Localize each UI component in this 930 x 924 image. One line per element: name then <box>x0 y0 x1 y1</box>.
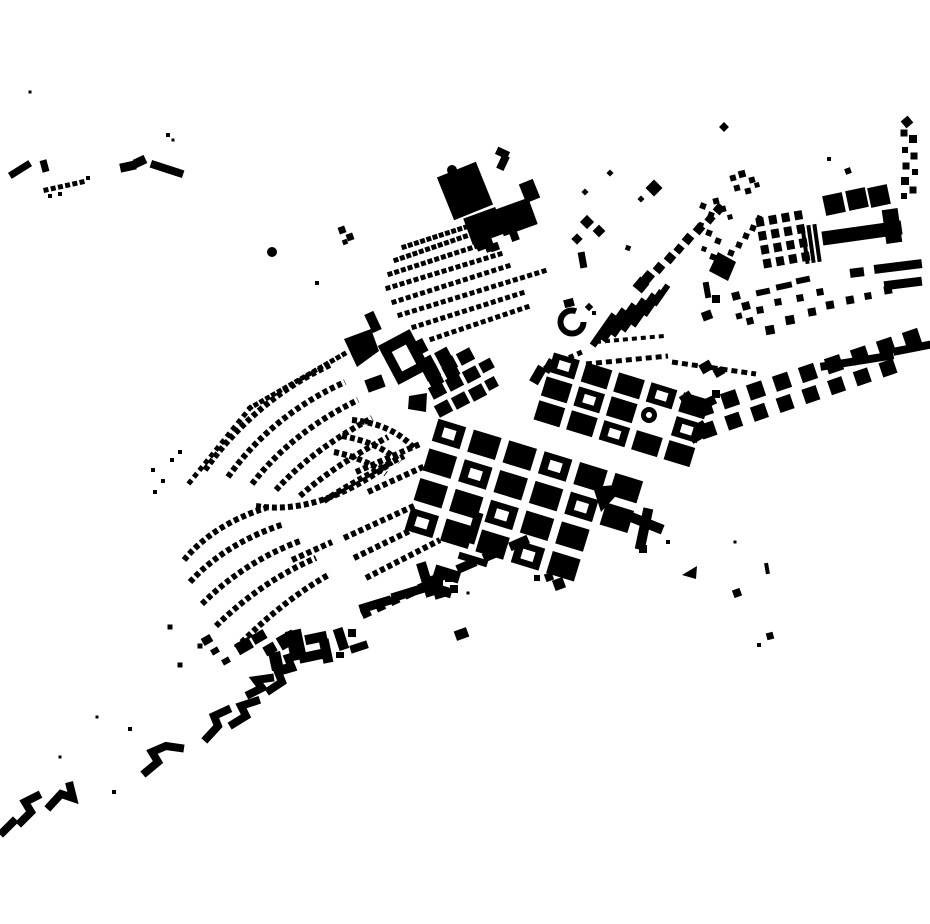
terrace-row-house <box>398 297 404 303</box>
terrace-row-house <box>419 290 425 296</box>
building-polygon <box>408 393 427 412</box>
building-footprint <box>764 563 770 575</box>
building-footprint <box>519 179 540 203</box>
building-footprint <box>664 252 677 265</box>
terrace-row-house <box>411 307 417 313</box>
building-footprint <box>201 634 214 646</box>
terrace-row-house <box>418 248 424 254</box>
building-footprint <box>776 281 793 290</box>
building-footprint <box>901 177 909 185</box>
building-footprint <box>874 259 923 274</box>
building-footprint <box>701 310 713 322</box>
building-footprint <box>342 239 348 245</box>
terrace-row-house <box>462 262 468 268</box>
building-footprint <box>348 629 356 637</box>
gasometer-ring <box>561 311 584 334</box>
terrace-row-house <box>750 403 769 422</box>
building-footprint <box>705 229 713 237</box>
building-footprint <box>902 147 908 153</box>
building-footprint <box>901 116 914 129</box>
terrace-row-house <box>405 253 411 259</box>
building-footprint <box>796 276 811 285</box>
terrace-row-house <box>487 316 493 322</box>
building-footprint <box>166 133 170 137</box>
zigzag-terrace <box>3 822 13 832</box>
city-block <box>541 376 573 403</box>
building-footprint <box>719 122 729 132</box>
building-footprint <box>571 233 582 244</box>
terrace-row-house <box>458 326 464 332</box>
city-block <box>781 212 790 222</box>
terrace-row-house <box>434 270 440 276</box>
building-footprint <box>86 176 90 180</box>
housing-row <box>586 356 668 364</box>
terrace-row-house <box>526 272 532 278</box>
building-footprint <box>221 656 231 665</box>
city-block <box>566 410 598 437</box>
zigzag-terrace <box>233 701 256 724</box>
building-footprint <box>827 157 831 161</box>
terrace-row-house <box>411 324 417 330</box>
terrace-row-house <box>450 228 456 234</box>
building-footprint <box>701 246 707 252</box>
terrace-row-house <box>241 411 248 418</box>
terrace-row-house <box>418 322 424 328</box>
city-block <box>631 430 663 457</box>
terrace-row-house <box>57 184 63 190</box>
building-footprint <box>349 640 369 653</box>
building-footprint <box>909 135 917 143</box>
building-footprint <box>727 214 733 220</box>
terrace-row-house <box>406 279 412 285</box>
building-footprint <box>8 160 32 179</box>
zigzag-terrace <box>207 710 227 738</box>
terrace-row-house <box>469 274 475 280</box>
terrace-row-house <box>392 283 398 289</box>
city-block <box>555 521 589 551</box>
city-block <box>529 481 563 511</box>
city-block <box>786 240 795 250</box>
building-footprint <box>765 325 775 335</box>
city-block <box>534 400 566 427</box>
building-footprint <box>754 182 760 188</box>
terrace-row-house <box>407 242 413 248</box>
terrace-row-house <box>827 376 846 395</box>
building-footprint <box>673 243 684 254</box>
terrace-row-house <box>476 257 482 263</box>
terrace-row-house <box>341 351 348 358</box>
terrace-row-house <box>476 303 482 309</box>
terrace-row-house <box>441 283 447 289</box>
zigzag-terrace <box>50 786 73 806</box>
city-block <box>775 256 784 266</box>
terrace-row-house <box>407 264 413 270</box>
building-footprint <box>336 652 344 658</box>
building-footprint <box>128 727 132 731</box>
terrace-row-house <box>440 315 446 321</box>
terrace-row-house <box>772 372 792 392</box>
building-footprint <box>901 193 907 199</box>
building-footprint <box>161 479 165 483</box>
building-footprint <box>756 306 764 314</box>
terrace-row-house <box>512 277 518 283</box>
terrace-row-house <box>454 294 460 300</box>
city-block <box>503 440 537 470</box>
housing-row <box>202 541 300 604</box>
terrace-row-house <box>447 313 453 319</box>
terrace-row-house <box>541 268 547 274</box>
terrace-row-house <box>720 389 740 409</box>
terrace-row-house <box>433 301 439 307</box>
building-footprint <box>867 184 891 208</box>
building-footprint <box>746 317 755 326</box>
city-block <box>773 242 782 252</box>
terrace-row-house <box>497 251 503 257</box>
terrace-row-house <box>252 401 259 408</box>
terrace-row-house <box>419 238 425 244</box>
terrace-row-house <box>476 288 482 294</box>
building-footprint <box>735 312 742 319</box>
terrace-row-house <box>397 312 403 318</box>
terrace-row-house <box>473 321 479 327</box>
terrace-row-house <box>436 333 442 339</box>
building-footprint <box>639 545 647 553</box>
terrace-row-house <box>43 187 49 193</box>
terrace-row-house <box>878 358 897 377</box>
building-footprint <box>592 311 596 315</box>
building-footprint <box>580 215 594 229</box>
building-footprint <box>606 169 613 176</box>
building-footprint <box>732 588 742 598</box>
building-footprint <box>153 490 157 494</box>
terrace-row-house <box>451 328 457 334</box>
terrace-row-house <box>448 266 454 272</box>
building-footprint <box>796 294 804 302</box>
terrace-row-house <box>455 264 461 270</box>
building-footprint <box>703 282 712 299</box>
terrace-row-house <box>427 258 433 264</box>
terrace-row-house <box>329 357 336 364</box>
building-footprint <box>333 627 349 651</box>
terrace-row-house <box>427 272 433 278</box>
building-footprint <box>822 192 846 216</box>
city-block <box>678 392 710 419</box>
terrace-row-house <box>490 299 496 305</box>
terrace-row-house <box>50 185 56 191</box>
building-footprint <box>315 281 319 285</box>
building-footprint <box>738 170 747 179</box>
terrace-row-house <box>476 272 482 278</box>
figure-ground-map <box>0 0 930 924</box>
round-building <box>267 247 277 257</box>
terrace-row-house <box>491 267 497 273</box>
terrace-row-house <box>400 267 406 273</box>
terrace-row-house <box>412 292 418 298</box>
housing-row <box>228 382 345 477</box>
building-footprint <box>744 187 751 194</box>
zigzag-terrace <box>21 796 37 822</box>
building-footprint <box>170 458 174 462</box>
building-footprint <box>593 225 606 238</box>
terrace-row-house <box>480 319 486 325</box>
terrace-row-house <box>483 255 489 261</box>
terrace-row-house <box>447 252 453 258</box>
terrace-row-house <box>534 270 540 276</box>
building-footprint <box>625 245 631 251</box>
building-footprint <box>712 390 720 398</box>
terrace-row-house <box>462 276 468 282</box>
building-footprint <box>727 249 735 257</box>
terrace-row-house <box>462 233 468 239</box>
terrace-row-house <box>801 385 820 404</box>
city-block <box>768 215 777 225</box>
city-block <box>763 258 772 268</box>
building-footprint <box>456 347 475 366</box>
terrace-row-house <box>495 314 501 320</box>
terrace-row-house <box>502 311 508 317</box>
round-building <box>447 165 457 175</box>
terrace-row-house <box>401 244 407 250</box>
terrace-row-house <box>438 232 444 238</box>
terrace-row-house <box>505 279 511 285</box>
building-footprint <box>578 252 588 269</box>
building-footprint <box>816 288 824 296</box>
building-footprint <box>774 298 782 306</box>
building-footprint <box>653 262 666 275</box>
building-footprint <box>741 301 751 311</box>
terrace-row-house <box>420 274 426 280</box>
terrace-row-house <box>432 317 438 323</box>
terrace-row-house <box>469 259 475 265</box>
terrace-row-house <box>467 245 473 251</box>
terrace-row-house <box>399 255 405 261</box>
terrace-row-house <box>462 292 468 298</box>
building-footprint <box>910 187 917 194</box>
terrace-row-house <box>457 226 463 232</box>
building-footprint <box>911 153 918 160</box>
building-footprint <box>496 154 510 171</box>
building-footprint <box>168 625 173 630</box>
terrace-row-house <box>490 283 496 289</box>
building-footprint <box>364 311 382 333</box>
city-block <box>796 224 805 234</box>
city-block <box>760 244 769 254</box>
terrace-row-house <box>490 253 496 259</box>
building-footprint <box>434 399 453 418</box>
building-footprint <box>757 643 761 647</box>
building-footprint <box>172 139 175 142</box>
city-block <box>664 440 696 467</box>
building-footprint <box>250 629 267 645</box>
building-footprint <box>903 163 910 170</box>
building-footprint <box>454 627 470 641</box>
terrace-row-house <box>483 285 489 291</box>
building-footprint <box>734 541 737 544</box>
terrace-row-house <box>443 331 449 337</box>
terrace-row-house <box>519 274 525 280</box>
city-block <box>467 430 501 460</box>
building-footprint <box>484 376 499 391</box>
building-footprint <box>96 716 99 719</box>
building-polygon <box>682 566 697 579</box>
building-footprint <box>714 237 722 245</box>
housing-row <box>184 508 266 560</box>
building-footprint <box>478 358 495 374</box>
terrace-row-house <box>404 310 410 316</box>
building-footprint <box>59 756 62 759</box>
terrace-row-house <box>512 292 518 298</box>
building-footprint <box>112 790 116 794</box>
terrace-row-house <box>426 288 432 294</box>
city-block <box>613 372 645 399</box>
building-footprint <box>666 540 670 544</box>
city-block <box>783 226 792 236</box>
city-block <box>788 254 797 264</box>
terrace-row-house <box>414 262 420 268</box>
building-footprint <box>48 194 52 198</box>
terrace-row-house <box>465 324 471 330</box>
building-footprint <box>534 575 540 581</box>
city-block <box>493 470 527 500</box>
terrace-row-house <box>434 256 440 262</box>
terrace-row-house <box>335 354 342 361</box>
terrace-row-house <box>450 237 456 243</box>
building-footprint <box>581 188 588 195</box>
building-footprint <box>58 192 62 196</box>
terrace-row-house <box>724 412 743 431</box>
terrace-row-house <box>456 235 462 241</box>
building-footprint <box>883 285 892 294</box>
terrace-row-house <box>454 250 460 256</box>
terrace-row-house <box>413 276 419 282</box>
terrace-row-house <box>405 294 411 300</box>
terrace-row-house <box>393 257 399 263</box>
terrace-row-house <box>437 242 443 248</box>
building-footprint <box>850 267 865 278</box>
building-footprint <box>682 233 695 246</box>
building-polygon <box>344 329 379 367</box>
building-footprint <box>882 208 903 244</box>
building-footprint <box>150 160 185 178</box>
terrace-row-house <box>455 279 461 285</box>
terrace-row-house <box>444 230 450 236</box>
terrace-row-house <box>498 281 504 287</box>
terrace-row-house <box>468 306 474 312</box>
building-footprint <box>742 232 750 240</box>
terrace-row-house <box>72 181 78 187</box>
building-footprint <box>699 202 707 210</box>
city-block <box>771 228 780 238</box>
terrace-row-house <box>443 240 449 246</box>
terrace-row-house <box>391 299 397 305</box>
terrace-row-house <box>247 405 254 412</box>
building-footprint <box>807 307 816 316</box>
housing-row <box>352 420 414 448</box>
city-block <box>758 231 767 241</box>
building-footprint <box>729 174 736 181</box>
building-footprint <box>585 303 593 311</box>
terrace-row-house <box>824 354 844 374</box>
building-footprint <box>451 391 470 410</box>
terrace-row-house <box>447 296 453 302</box>
building-footprint <box>712 295 720 303</box>
city-block <box>755 217 764 227</box>
housing-row <box>256 462 392 508</box>
terrace-row-house <box>853 367 872 386</box>
housing-row <box>190 524 284 582</box>
building-footprint <box>845 187 869 211</box>
terrace-row-house <box>413 240 419 246</box>
city-block <box>801 251 810 261</box>
building-footprint <box>338 226 347 235</box>
building-footprint <box>731 291 741 301</box>
building-footprint <box>462 365 481 384</box>
terrace-row-house <box>440 254 446 260</box>
terrace-row-house <box>394 269 400 275</box>
terrace-row-house <box>524 304 530 310</box>
terrace-row-house <box>498 265 504 271</box>
city-block <box>609 473 643 503</box>
building-footprint <box>766 632 775 641</box>
terrace-row-house <box>385 285 391 291</box>
terrace-row-house <box>186 478 193 485</box>
terrace-row-house <box>425 319 431 325</box>
building-footprint <box>198 644 203 649</box>
building-footprint <box>825 300 834 309</box>
terrace-row-house <box>432 234 438 240</box>
building-footprint <box>552 577 566 591</box>
building-footprint <box>845 295 854 304</box>
terrace-row-house <box>431 244 437 250</box>
building-footprint <box>178 450 182 454</box>
terrace-row-house <box>192 472 199 479</box>
building-footprint <box>749 224 757 232</box>
terrace-row-house <box>776 394 795 413</box>
terrace-row-house <box>460 247 466 253</box>
terrace-row-house <box>746 380 766 400</box>
terrace-row-house <box>79 179 85 185</box>
terrace-row-house <box>412 250 418 256</box>
city-block <box>423 448 457 478</box>
terrace-row-house <box>461 308 467 314</box>
building-footprint <box>364 374 385 392</box>
terrace-row-house <box>517 306 523 312</box>
city-block <box>606 396 638 423</box>
building-footprint <box>912 169 918 175</box>
terrace-row-house <box>505 263 511 269</box>
terrace-row-house <box>387 271 393 277</box>
building-footprint <box>178 663 183 668</box>
building-footprint <box>637 195 644 202</box>
city-block <box>794 210 803 220</box>
building-footprint <box>646 180 663 197</box>
terrace-row-house <box>418 305 424 311</box>
terrace-row-house <box>426 303 432 309</box>
building-footprint <box>29 91 32 94</box>
terrace-row-house <box>454 310 460 316</box>
terrace-row-house <box>483 270 489 276</box>
terrace-row-house <box>440 299 446 305</box>
building-footprint <box>735 241 743 249</box>
building-footprint <box>563 298 575 308</box>
terrace-row-house <box>399 281 405 287</box>
building-footprint <box>901 130 908 137</box>
terrace-row-house <box>497 297 503 303</box>
terrace-row-house <box>420 260 426 266</box>
building-footprint <box>733 184 740 191</box>
terrace-row-house <box>483 301 489 307</box>
building-footprint <box>748 176 755 183</box>
